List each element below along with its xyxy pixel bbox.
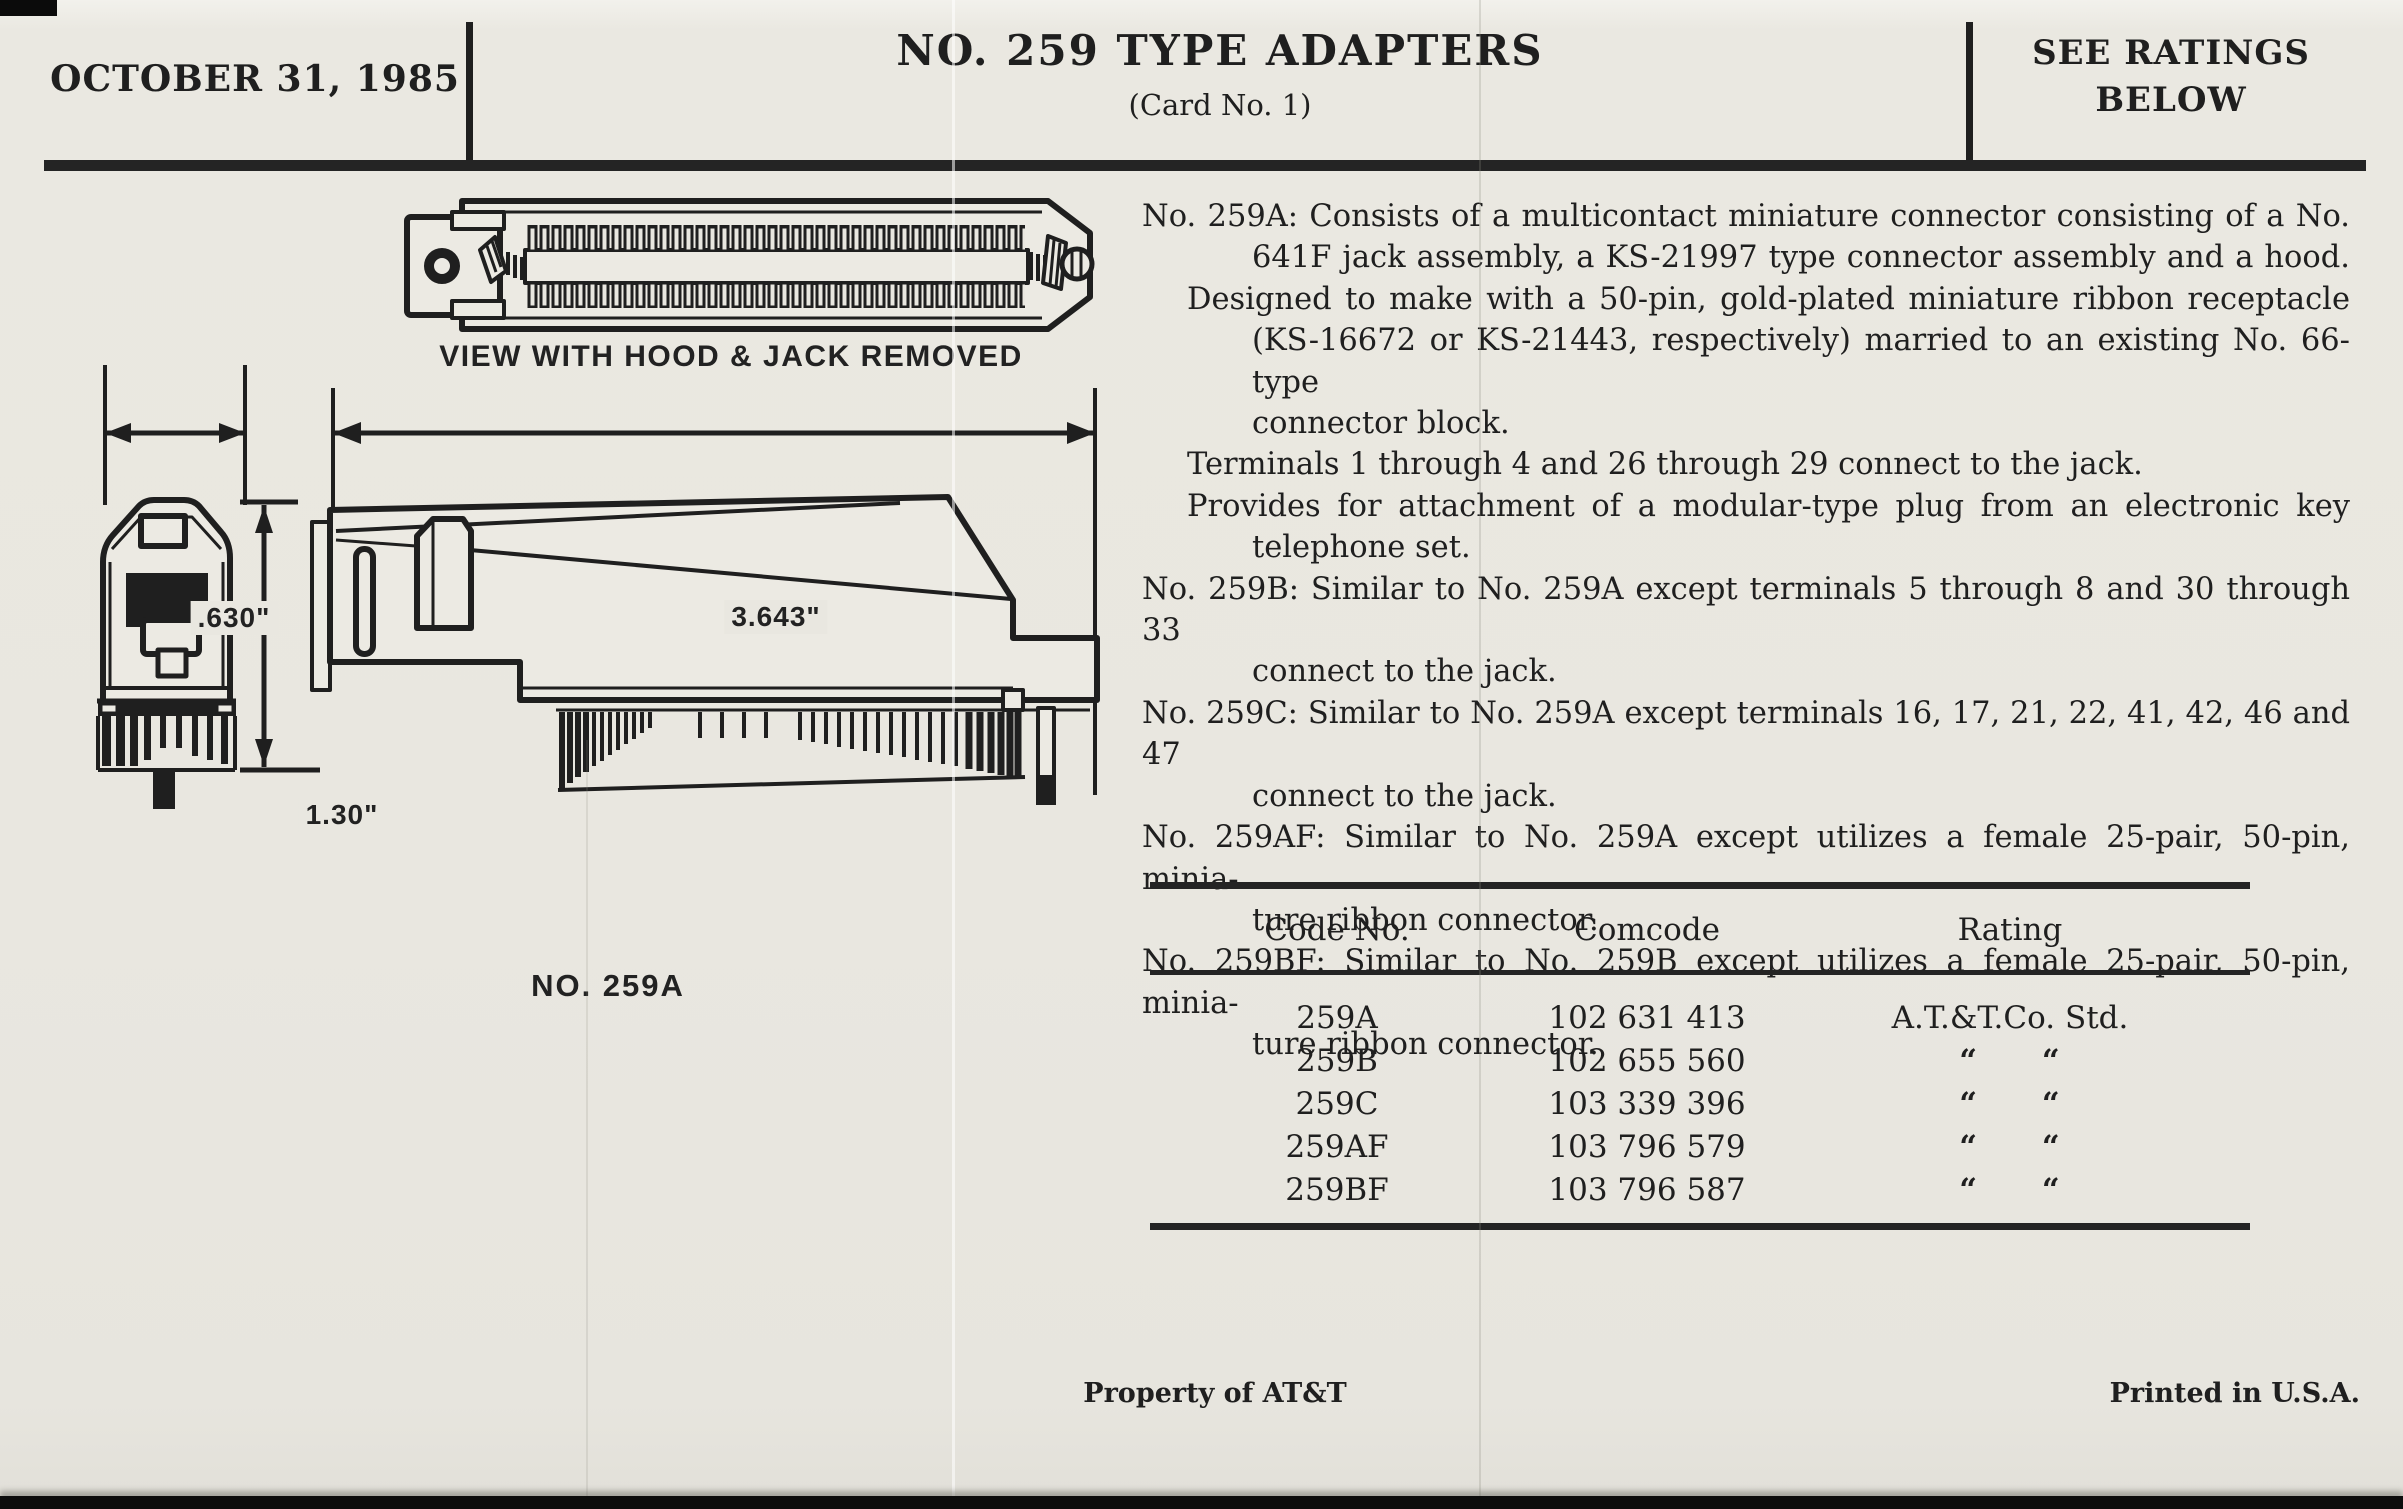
scan-bottom-edge — [0, 1496, 2403, 1509]
page-title: NO. 259 TYPE ADAPTERS — [480, 26, 1960, 75]
data-card: OCTOBER 31, 1985 NO. 259 TYPE ADAPTERS (… — [0, 0, 2403, 1509]
screw-head — [1062, 249, 1092, 279]
scan-crease — [586, 740, 588, 1509]
side-tab — [417, 519, 471, 628]
dim-label-3643: 3.643" — [724, 600, 827, 634]
latch-window — [141, 516, 185, 546]
cell-rating: “ “ — [1770, 1129, 2250, 1165]
table-rule-top — [1150, 882, 2250, 889]
cell-comcode: 103 796 587 — [1524, 1172, 1770, 1208]
cell-comcode: 102 655 560 — [1524, 1043, 1770, 1079]
ratings-table: Code No. Comcode Rating 259A 102 631 413… — [1150, 882, 2250, 1230]
description-line: connect to the jack. — [1142, 651, 2350, 692]
part-label: NO. 259A — [524, 967, 692, 1005]
cell-code: 259B — [1150, 1043, 1524, 1079]
table-header-row: Code No. Comcode Rating — [1150, 889, 2250, 970]
table-row: 259C 103 339 396 “ “ — [1150, 1082, 2250, 1125]
scan-crease — [1479, 0, 1481, 1509]
front-view-teeth — [102, 716, 228, 766]
header-divider-left — [466, 22, 473, 167]
column-header-rating: Rating — [1770, 912, 2250, 948]
view-caption: VIEW WITH HOOD & JACK REMOVED — [432, 339, 1030, 375]
adapter-front-view — [97, 500, 236, 809]
technical-drawing — [60, 185, 1140, 875]
contact-teeth-bottom — [527, 281, 1025, 308]
description-line: Terminals 1 through 4 and 26 through 29 … — [1142, 444, 2350, 485]
scan-corner-mark — [0, 0, 57, 16]
table-row: 259BF 103 796 587 “ “ — [1150, 1168, 2250, 1211]
issue-date: OCTOBER 31, 1985 — [40, 58, 470, 100]
cell-comcode: 103 796 579 — [1524, 1129, 1770, 1165]
table-row: 259A 102 631 413 A.T.&T.Co. Std. — [1150, 996, 2250, 1039]
table-row: 259B 102 655 560 “ “ — [1150, 1039, 2250, 1082]
cell-comcode: 102 631 413 — [1524, 1000, 1770, 1036]
column-header-comcode: Comcode — [1524, 912, 1770, 948]
cell-rating: A.T.&T.Co. Std. — [1770, 1000, 2250, 1036]
description-line: Provides for attachment of a modular-typ… — [1142, 486, 2350, 527]
footer-printed-note: Printed in U.S.A. — [2000, 1378, 2360, 1409]
rear-pin — [1038, 708, 1054, 778]
dim-label-630: .630" — [191, 601, 278, 635]
footer-property-note: Property of AT&T — [1065, 1378, 1365, 1409]
cell-rating: “ “ — [1770, 1043, 2250, 1079]
description-line: No. 259B: Similar to No. 259A except ter… — [1142, 569, 2350, 652]
description-line: No. 259C: Similar to No. 259A except ter… — [1142, 693, 2350, 776]
description-line: telephone set. — [1142, 527, 2350, 568]
table-rule-bottom — [1150, 1223, 2250, 1230]
description-line: 641F jack assembly, a KS-21997 type conn… — [1142, 237, 2350, 278]
cell-code: 259C — [1150, 1086, 1524, 1122]
cell-rating: “ “ — [1770, 1172, 2250, 1208]
dim-label-130: 1.30" — [299, 798, 386, 832]
description-line: Designed to make with a 50-pin, gold-pla… — [1142, 279, 2350, 320]
card-number: (Card No. 1) — [480, 88, 1960, 122]
dimension-130 — [240, 502, 320, 770]
cell-comcode: 103 339 396 — [1524, 1086, 1770, 1122]
header-rule — [44, 160, 2366, 171]
cell-code: 259A — [1150, 1000, 1524, 1036]
description-line: No. 259A: Consists of a multicontact min… — [1142, 196, 2350, 237]
adapter-side-view — [312, 497, 1097, 805]
ratings-note: SEE RATINGS BELOW — [1986, 30, 2356, 124]
scan-crease — [952, 0, 955, 1509]
description-line: connect to the jack. — [1142, 776, 2350, 817]
contact-teeth-top — [527, 225, 1025, 252]
cell-rating: “ “ — [1770, 1086, 2250, 1122]
table-row: 259AF 103 796 579 “ “ — [1150, 1125, 2250, 1168]
front-view-pin — [153, 772, 175, 809]
cell-code: 259AF — [1150, 1129, 1524, 1165]
description-line: connector block. — [1142, 403, 2350, 444]
dimension-630 — [105, 365, 245, 505]
connector-top-view — [407, 201, 1092, 329]
column-header-code: Code No. — [1150, 912, 1524, 948]
cell-code: 259BF — [1150, 1172, 1524, 1208]
header-divider-right — [1966, 22, 1973, 167]
side-slot — [356, 549, 373, 654]
description-line: (KS-16672 or KS-21443, respectively) mar… — [1142, 320, 2350, 403]
